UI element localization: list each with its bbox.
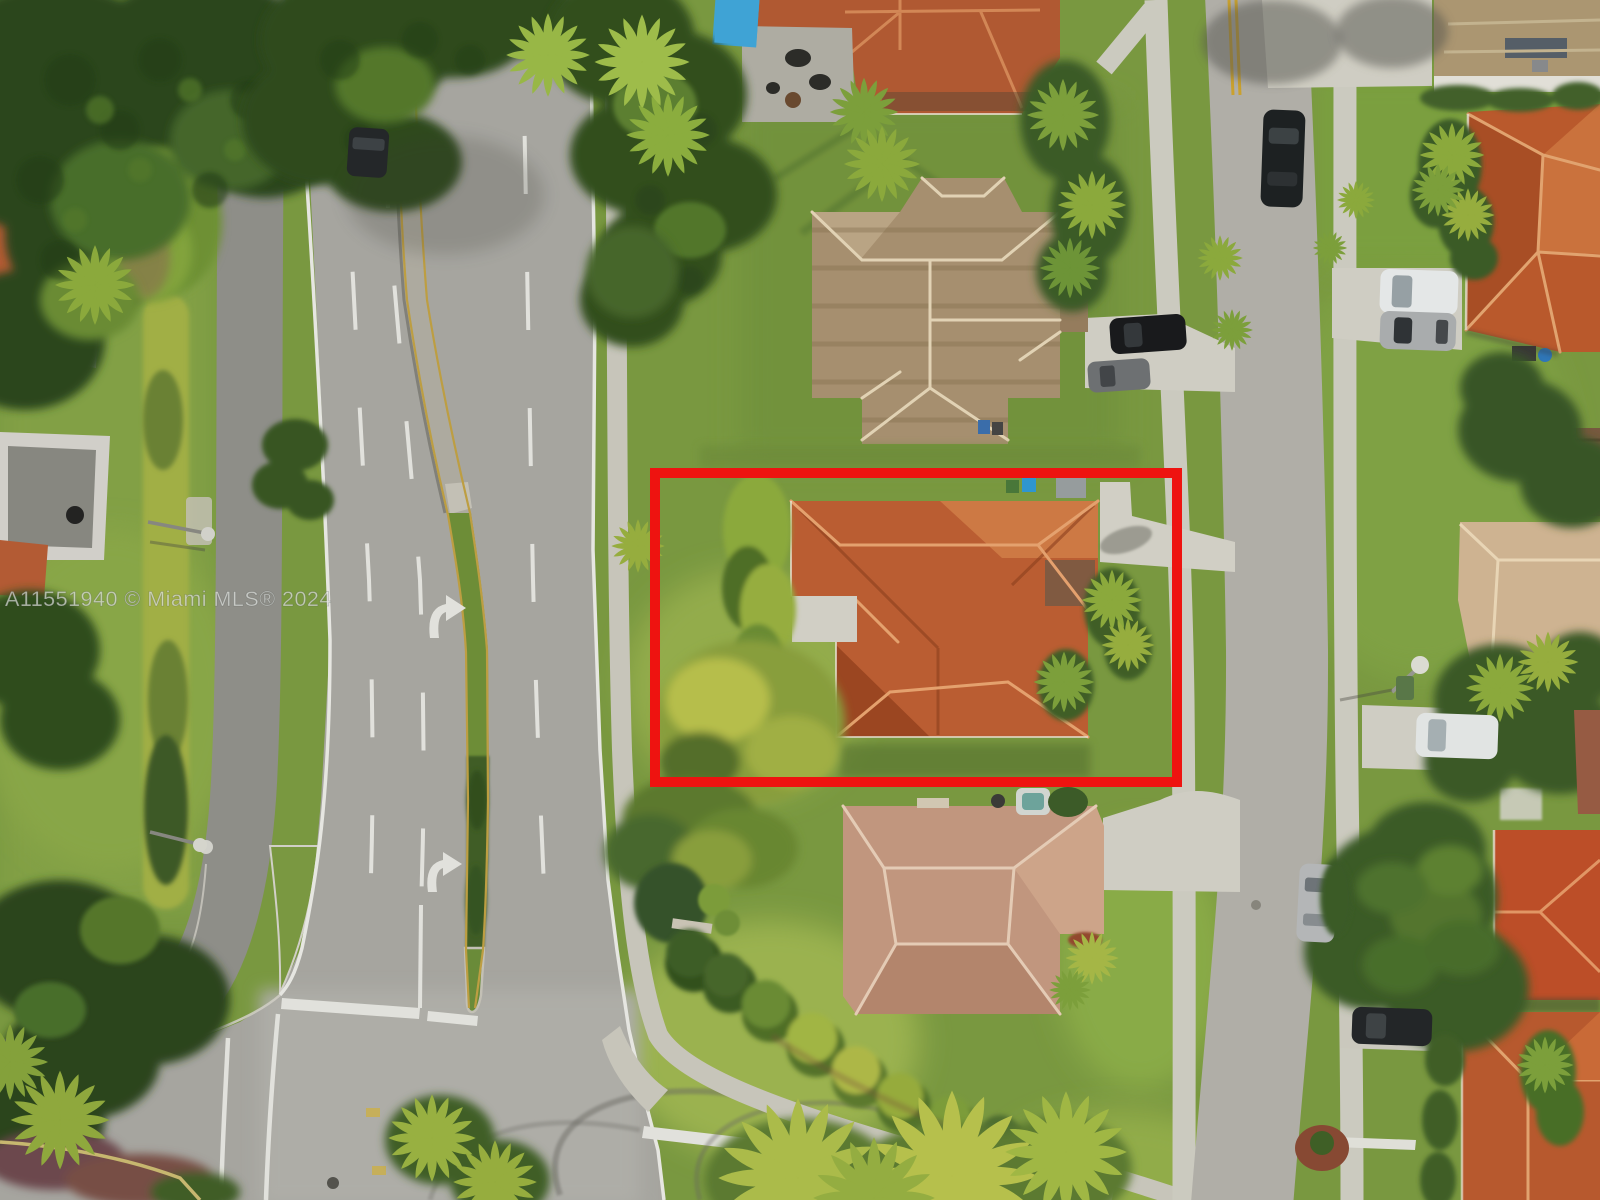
svg-text:A11551940 © Miami MLS® 2024: A11551940 © Miami MLS® 2024: [5, 587, 332, 611]
